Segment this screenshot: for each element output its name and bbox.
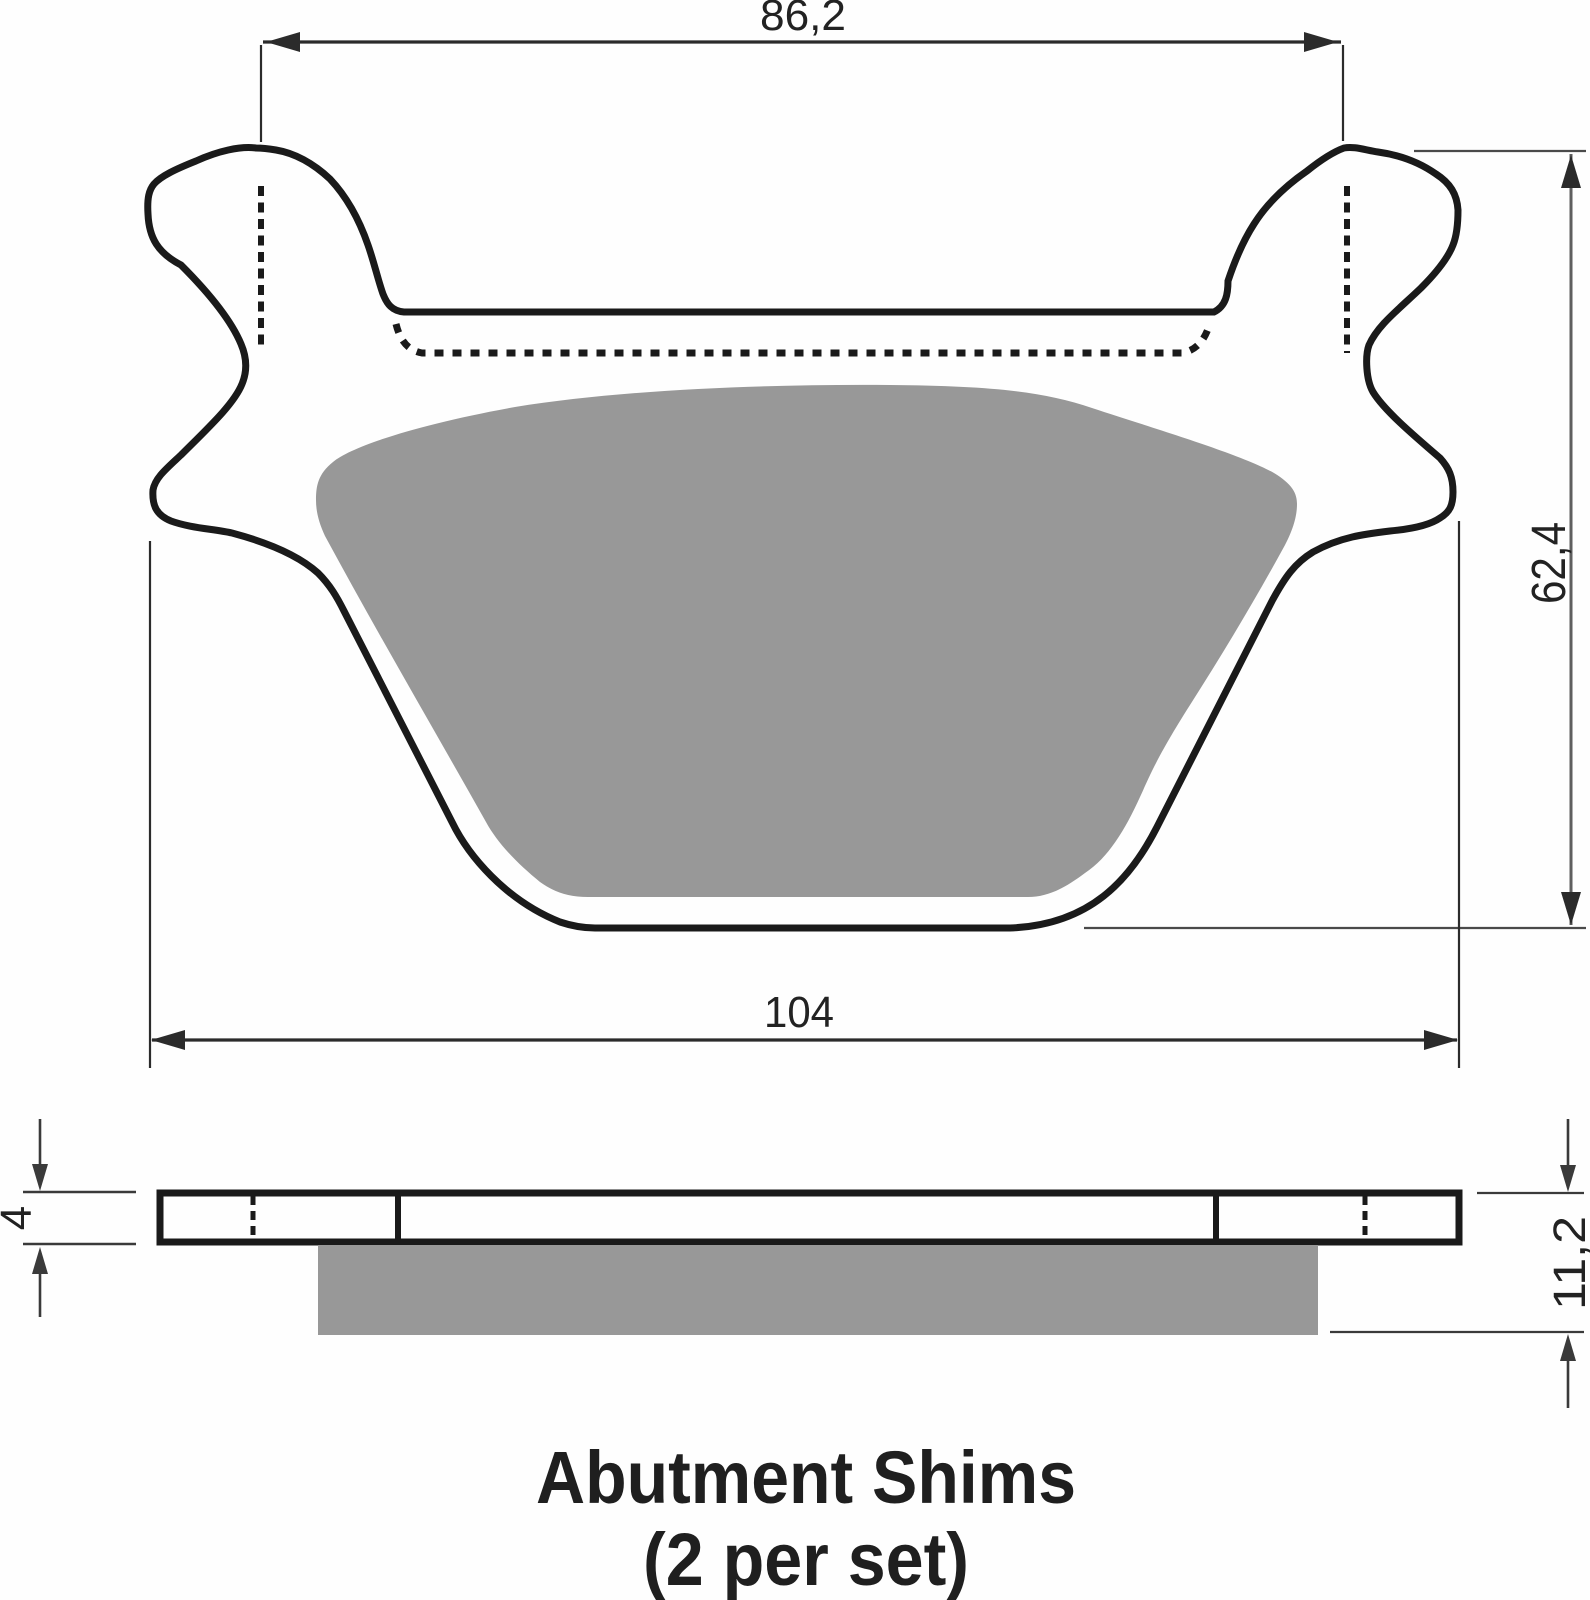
svg-text:Abutment Shims: Abutment Shims [536, 1436, 1076, 1519]
svg-text:(2 per set): (2 per set) [643, 1518, 969, 1600]
svg-text:11,2: 11,2 [1544, 1216, 1590, 1310]
svg-text:62,4: 62,4 [1523, 522, 1576, 604]
svg-text:86,2: 86,2 [760, 0, 846, 40]
svg-text:104: 104 [764, 988, 834, 1037]
svg-text:4: 4 [0, 1206, 41, 1230]
